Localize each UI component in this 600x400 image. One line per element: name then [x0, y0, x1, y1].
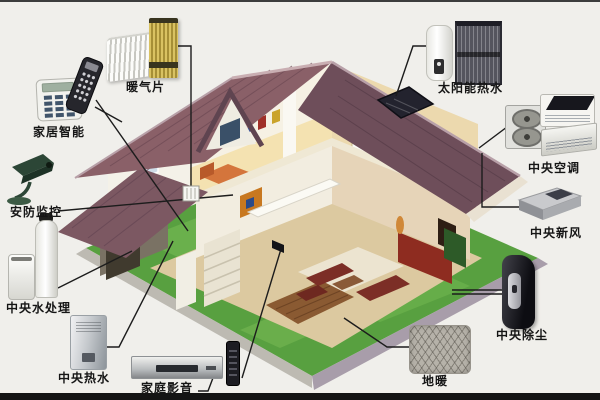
- line-ac: [479, 127, 507, 148]
- image-bottom-border: [0, 393, 600, 400]
- label-security: 安防监控: [10, 203, 62, 220]
- label-radiator: 暖气片: [126, 78, 165, 95]
- water-treatment-cylinder-image: [35, 220, 58, 298]
- central-vacuum-image: [502, 255, 535, 329]
- label-vacuum: 中央除尘: [496, 326, 548, 343]
- label-water-treatment: 中央水处理: [6, 299, 71, 316]
- floor-heating-image: [409, 325, 471, 374]
- dvd-player-image: [131, 356, 223, 379]
- label-smart-home: 家居智能: [33, 123, 85, 140]
- fresh-air-unit-image: [517, 186, 583, 224]
- label-fresh-air: 中央新风: [530, 224, 582, 241]
- radiator-white-image: [107, 32, 152, 82]
- radiator-yellow-image: [149, 18, 178, 78]
- water-treatment-tank-image: [8, 254, 35, 300]
- security-camera-image: [6, 150, 64, 208]
- solar-water-tank-image: [426, 25, 453, 81]
- label-ac: 中央空调: [528, 159, 580, 176]
- line-solar: [396, 46, 429, 96]
- label-floor-heating: 地暖: [422, 372, 448, 389]
- av-remote-image: [226, 341, 240, 386]
- ac-cassette-unit-image: [540, 94, 595, 127]
- diagram-canvas: 暖气片 家居智能 安防监控 中央水处理 中央热水 家庭影音 地暖 中央除尘 中央…: [0, 0, 600, 400]
- label-hot-water: 中央热水: [58, 369, 110, 386]
- water-heater-image: [70, 315, 107, 370]
- image-top-border: [0, 0, 600, 2]
- solar-panel-image: [455, 21, 502, 85]
- label-solar: 太阳能热水: [438, 79, 503, 96]
